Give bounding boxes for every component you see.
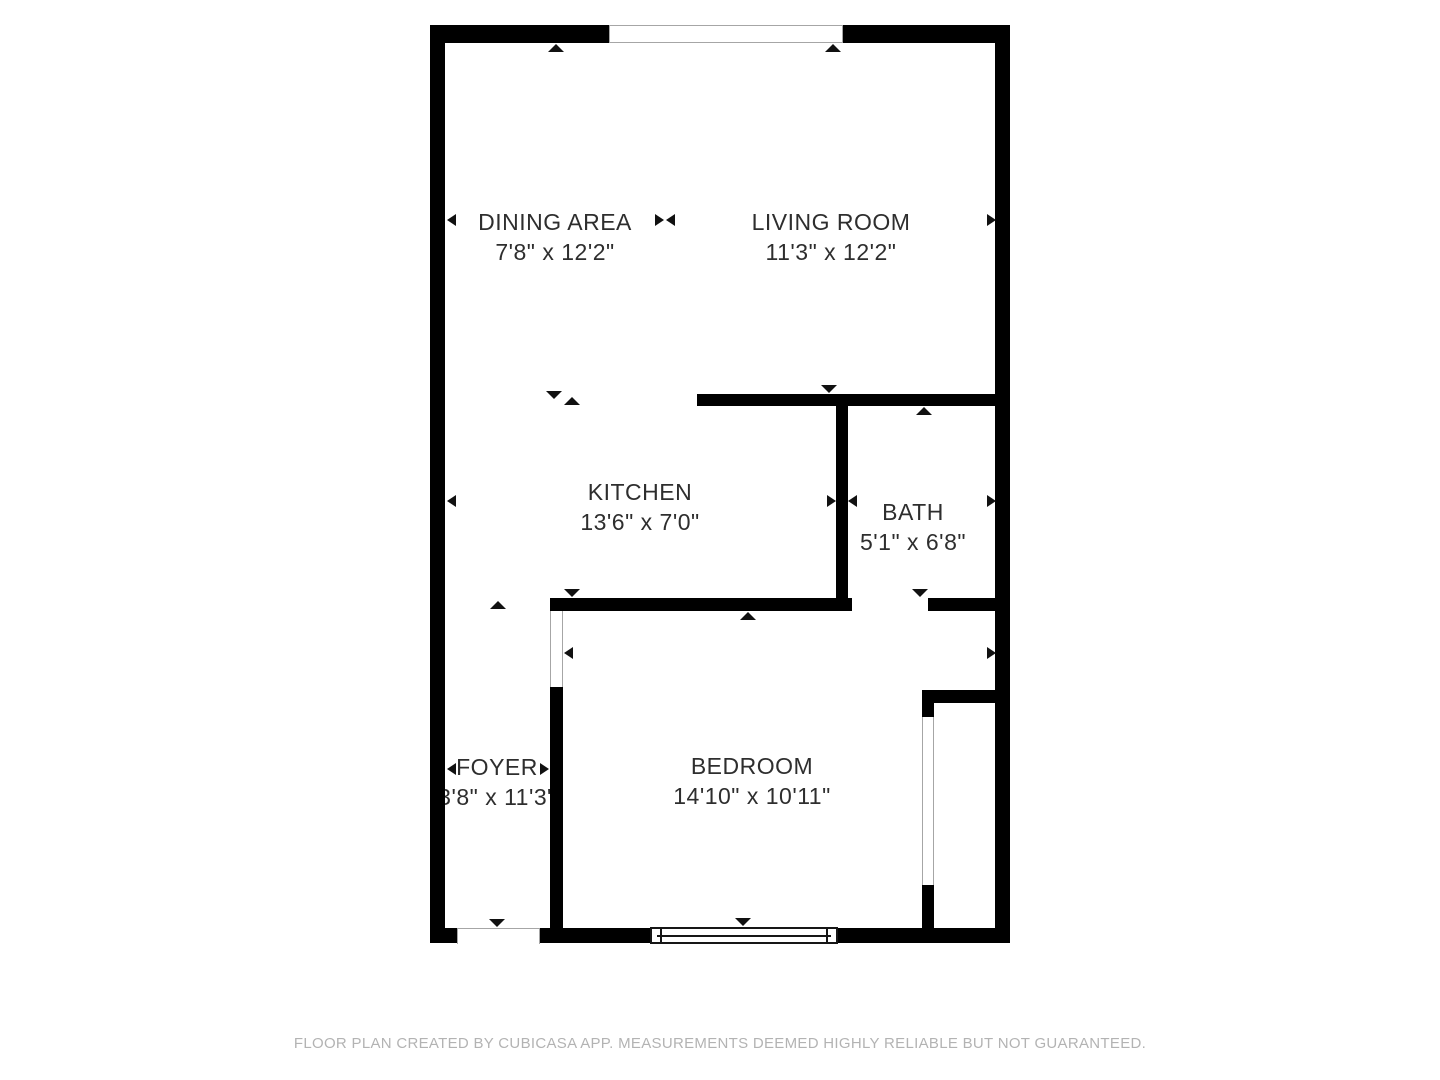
measure-arrow-bath-bottom-icon — [912, 589, 928, 597]
measure-arrow-kitchen-bottom-icon — [564, 589, 580, 597]
measure-arrow-bath-top-icon — [916, 407, 932, 415]
wall-kitchen-bottom — [550, 598, 852, 611]
wall-exterior-bottom-mid — [540, 928, 650, 943]
room-label-foyer: FOYER 3'8" x 11'3" — [438, 752, 556, 812]
door-foyer-bedroom-opening — [550, 611, 563, 687]
room-dimensions: 3'8" x 11'3" — [438, 782, 556, 812]
wall-exterior-top-left — [430, 25, 609, 43]
room-dimensions: 11'3" x 12'2" — [752, 237, 911, 267]
room-label-living-room: LIVING ROOM 11'3" x 12'2" — [752, 207, 911, 267]
wall-kitchen-bath-divider — [836, 394, 848, 611]
measure-arrow-bath-left-icon — [848, 495, 857, 507]
door-bedroom-closet-opening — [922, 717, 934, 885]
wall-foyer-bedroom-divider — [550, 687, 563, 928]
measure-arrow-bedroom-top-icon — [740, 612, 756, 620]
opening-top-balcony — [609, 25, 843, 43]
measure-arrow-foyer-top-icon — [490, 601, 506, 609]
measure-arrow-living-right-icon — [987, 214, 996, 226]
measure-arrow-living-wall-icon — [821, 385, 837, 393]
wall-bath-bottom — [928, 598, 995, 611]
room-name: KITCHEN — [580, 477, 699, 507]
window-tick-right — [826, 929, 828, 942]
measure-arrow-bedroom-right-icon — [987, 647, 996, 659]
window-bedroom — [650, 927, 838, 944]
measure-arrow-living-top-icon — [825, 44, 841, 52]
measure-arrow-dining-left-icon — [447, 214, 456, 226]
arrow-right-icon — [655, 214, 664, 226]
measure-arrow-foyer-left-icon — [447, 763, 456, 775]
measure-arrow-dining-top-icon — [548, 44, 564, 52]
wall-exterior-bottom-left — [430, 928, 457, 943]
measure-arrow-foyer-bottom-icon — [489, 919, 505, 927]
measure-arrow-bedroom-bottom-icon — [735, 918, 751, 926]
wall-closet-stub-bottom — [922, 885, 934, 928]
floor-plan-canvas: DINING AREA 7'8" x 12'2" LIVING ROOM 11'… — [0, 0, 1440, 1080]
room-dimensions: 5'1" x 6'8" — [860, 527, 966, 557]
arrow-left-icon — [666, 214, 675, 226]
room-dimensions: 7'8" x 12'2" — [478, 237, 632, 267]
room-name: LIVING ROOM — [752, 207, 911, 237]
measure-arrow-foyer-right-icon — [540, 763, 549, 775]
door-entry-opening — [457, 928, 540, 944]
measure-arrow-bath-right-icon — [987, 495, 996, 507]
wall-exterior-right — [995, 25, 1010, 943]
window-midline — [657, 935, 831, 937]
window-tick-left — [660, 929, 662, 942]
wall-closet-stub-top — [922, 690, 934, 717]
measure-arrow-kitchen-top-icon — [564, 397, 580, 405]
room-label-bath: BATH 5'1" x 6'8" — [860, 497, 966, 557]
wall-exterior-left — [430, 25, 445, 943]
room-name: BEDROOM — [673, 751, 831, 781]
wall-exterior-bottom-right — [838, 928, 1010, 943]
room-dimensions: 14'10" x 10'11" — [673, 781, 831, 811]
wall-exterior-top-right — [843, 25, 1010, 43]
room-label-dining-area: DINING AREA 7'8" x 12'2" — [478, 207, 632, 267]
room-name: BATH — [860, 497, 966, 527]
room-name: DINING AREA — [478, 207, 632, 237]
measure-arrow-kitchen-left-icon — [447, 495, 456, 507]
measure-arrow-dining-bottom-icon — [546, 391, 562, 399]
measure-arrow-kitchen-right-icon — [827, 495, 836, 507]
measure-arrow-bedroom-left-icon — [564, 647, 573, 659]
measure-arrow-dining-living-icon — [655, 214, 675, 226]
room-label-bedroom: BEDROOM 14'10" x 10'11" — [673, 751, 831, 811]
room-dimensions: 13'6" x 7'0" — [580, 507, 699, 537]
footer-disclaimer: FLOOR PLAN CREATED BY CUBICASA APP. MEAS… — [0, 1035, 1440, 1052]
room-label-kitchen: KITCHEN 13'6" x 7'0" — [580, 477, 699, 537]
